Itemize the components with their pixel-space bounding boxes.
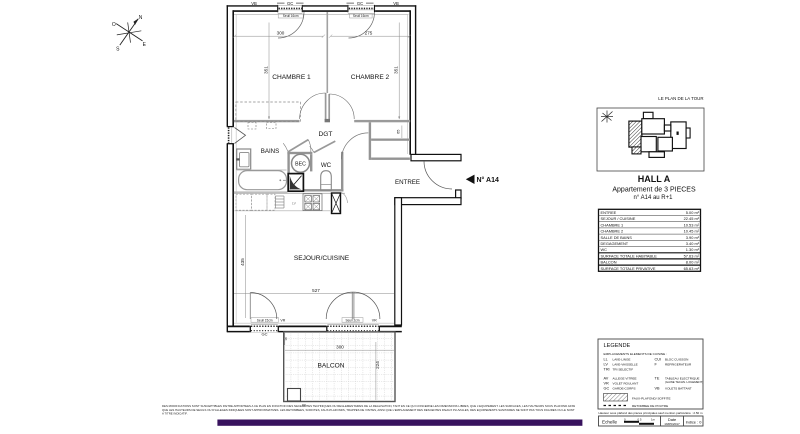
svg-text:GC: GC bbox=[262, 331, 268, 336]
svg-text:65.63 m²: 65.63 m² bbox=[684, 266, 700, 271]
svg-text:Seuil 16cm: Seuil 16cm bbox=[353, 14, 369, 18]
svg-text:1m: 1m bbox=[651, 417, 656, 421]
svg-text:GC: GC bbox=[357, 1, 363, 6]
svg-text:VR: VR bbox=[604, 382, 610, 386]
svg-text:Indice : 0: Indice : 0 bbox=[686, 419, 703, 424]
svg-text:351: 351 bbox=[263, 66, 268, 74]
svg-text:SEJOUR / CUISINE: SEJOUR / CUISINE bbox=[601, 216, 636, 221]
svg-text:3.40 m²: 3.40 m² bbox=[686, 241, 700, 246]
svg-text:N: N bbox=[139, 15, 143, 21]
svg-text:LV: LV bbox=[604, 363, 609, 367]
svg-text:QUE LES HAUTEURS DE SEUILS OU: QUE LES HAUTEURS DE SEUILS OU D'ALLEGES … bbox=[162, 408, 575, 412]
svg-text:10.53 m²: 10.53 m² bbox=[684, 222, 700, 227]
svg-text:LE PLAN DE LA TOUR: LE PLAN DE LA TOUR bbox=[658, 96, 703, 101]
svg-text:TRI: TRI bbox=[604, 368, 610, 372]
svg-text:VB: VB bbox=[251, 1, 257, 6]
svg-text:WC: WC bbox=[601, 247, 608, 252]
svg-text:LAVE-VAISSELLE: LAVE-VAISSELLE bbox=[613, 363, 638, 367]
svg-text:LEGENDE: LEGENDE bbox=[604, 343, 631, 349]
svg-text:BALCON: BALCON bbox=[317, 363, 344, 370]
svg-text:O: O bbox=[112, 22, 116, 28]
svg-text:DGT: DGT bbox=[319, 131, 333, 138]
svg-text:BLOC CUISSON: BLOC CUISSON bbox=[665, 358, 688, 362]
svg-text:435: 435 bbox=[240, 258, 245, 266]
svg-text:18: 18 bbox=[284, 337, 288, 341]
svg-text:GC: GC bbox=[604, 387, 610, 391]
svg-text:GC: GC bbox=[287, 1, 293, 6]
svg-text:FAUX-PLAFOND/ SOFFITE: FAUX-PLAFOND/ SOFFITE bbox=[632, 397, 671, 401]
svg-text:527: 527 bbox=[312, 288, 320, 293]
svg-text:EMPLACEMENTS ELEMENTS DE CUISI: EMPLACEMENTS ELEMENTS DE CUISINE : bbox=[604, 352, 668, 356]
svg-text:BALCON: BALCON bbox=[601, 260, 617, 265]
svg-text:Seuil 16cm: Seuil 16cm bbox=[283, 14, 299, 18]
svg-text:VB: VB bbox=[655, 387, 661, 391]
svg-text:BAINS: BAINS bbox=[261, 148, 280, 155]
svg-text:8.00 m²: 8.00 m² bbox=[686, 260, 700, 265]
svg-text:1.30 m²: 1.30 m² bbox=[686, 247, 700, 252]
svg-text:Appartement de 3 PIECES: Appartement de 3 PIECES bbox=[612, 187, 696, 194]
svg-text:300: 300 bbox=[336, 344, 344, 349]
svg-text:(GAINE TECHN. LOGEMENT): (GAINE TECHN. LOGEMENT) bbox=[665, 380, 703, 384]
svg-text:ALLEGE VITREE: ALLEGE VITREE bbox=[613, 377, 637, 381]
svg-text:CHAMBRE 1: CHAMBRE 1 bbox=[601, 222, 624, 227]
svg-text:WC: WC bbox=[321, 162, 332, 169]
svg-text:TE: TE bbox=[655, 377, 660, 381]
svg-text:CUI: CUI bbox=[655, 358, 662, 362]
svg-text:65: 65 bbox=[396, 129, 401, 134]
svg-text:CHAMBRE 1: CHAMBRE 1 bbox=[272, 74, 311, 81]
svg-text:5.00 m²: 5.00 m² bbox=[686, 210, 700, 215]
svg-text:300: 300 bbox=[277, 31, 285, 36]
svg-text:275: 275 bbox=[365, 31, 373, 36]
svg-text:22.45 m²: 22.45 m² bbox=[684, 216, 700, 221]
svg-text:SALLE DE BAINS: SALLE DE BAINS bbox=[601, 235, 633, 240]
svg-text:REFRIGERATEUR: REFRIGERATEUR bbox=[665, 363, 692, 367]
svg-text:HALL A: HALL A bbox=[638, 174, 671, 184]
svg-text:Hauteur sous plafond des pièce: Hauteur sous plafond des pièces principa… bbox=[598, 411, 703, 415]
svg-text:N° A14: N° A14 bbox=[477, 176, 499, 184]
svg-text:19/05/2017: 19/05/2017 bbox=[664, 422, 680, 426]
svg-text:VR: VR bbox=[280, 318, 285, 322]
svg-text:GARDE-CORPS: GARDE-CORPS bbox=[613, 387, 636, 391]
svg-text:BEC: BEC bbox=[295, 161, 306, 167]
svg-text:224: 224 bbox=[375, 361, 380, 369]
svg-text:SURFACE TOTALE HABITABLE: SURFACE TOTALE HABITABLE bbox=[601, 253, 658, 258]
svg-text:SEJOUR/CUISINE: SEJOUR/CUISINE bbox=[294, 255, 350, 262]
svg-text:0.5: 0.5 bbox=[638, 417, 642, 421]
svg-text:CHAMBRE 2: CHAMBRE 2 bbox=[351, 74, 390, 81]
svg-text:CHAMBRE 2: CHAMBRE 2 bbox=[601, 229, 624, 234]
svg-text:ENTREE: ENTREE bbox=[395, 179, 420, 186]
svg-text:LL: LL bbox=[604, 358, 608, 362]
svg-text:RETOMBEE DE POUTRE: RETOMBEE DE POUTRE bbox=[632, 404, 668, 408]
svg-text:VOLET ROULANT: VOLET ROULANT bbox=[613, 382, 639, 386]
svg-text:3.90 m²: 3.90 m² bbox=[686, 235, 700, 240]
svg-text:TRI SELECTIF: TRI SELECTIF bbox=[613, 368, 634, 372]
svg-text:Seuil 15cm: Seuil 15cm bbox=[257, 318, 273, 322]
svg-text:ENTREE: ENTREE bbox=[601, 210, 617, 215]
svg-text:DEGAGEMENT: DEGAGEMENT bbox=[601, 241, 629, 246]
svg-text:VOLETS BATTANT: VOLETS BATTANT bbox=[665, 387, 692, 391]
svg-text:Echelle: Echelle bbox=[602, 420, 618, 425]
svg-text:SURFACE TOTALE PRIVATIVE: SURFACE TOTALE PRIVATIVE bbox=[601, 266, 656, 271]
svg-text:LAVE-LINGE: LAVE-LINGE bbox=[613, 358, 631, 362]
svg-text:A TITRE INDICATIF.: A TITRE INDICATIF. bbox=[162, 411, 188, 415]
svg-text:VB: VB bbox=[393, 1, 399, 6]
svg-text:n° A14 au R+1: n° A14 au R+1 bbox=[634, 195, 674, 201]
svg-text:10.45 m²: 10.45 m² bbox=[684, 229, 700, 234]
svg-text:57.63 m²: 57.63 m² bbox=[684, 253, 700, 258]
svg-text:AV: AV bbox=[604, 377, 609, 381]
svg-text:VR: VR bbox=[372, 318, 377, 322]
svg-text:351: 351 bbox=[394, 66, 399, 74]
